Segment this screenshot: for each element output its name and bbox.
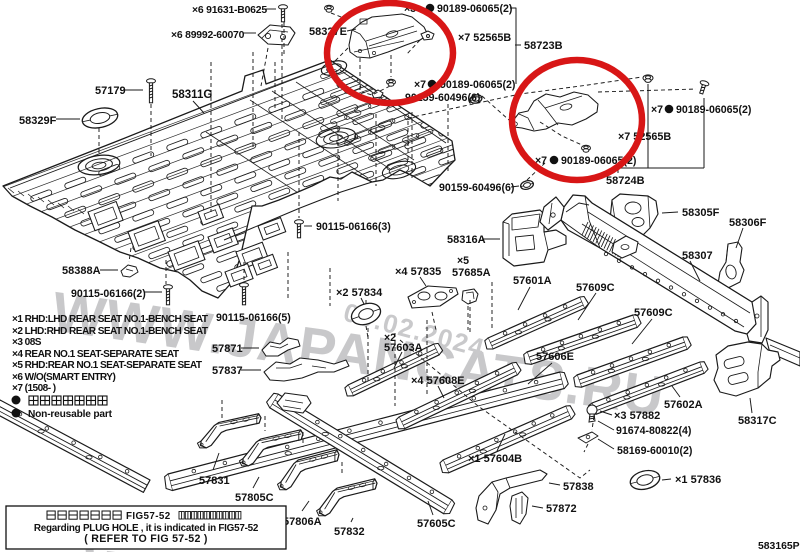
svg-text:×2 57834: ×2 57834 [336,287,383,299]
svg-text:58316A: 58316A [447,234,486,246]
svg-text:×4 57608E: ×4 57608E [411,375,465,387]
svg-text:×1 57836: ×1 57836 [675,474,721,486]
svg-text:57606E: 57606E [536,351,574,363]
svg-text:×6 91631-B0625: ×6 91631-B0625 [192,5,267,16]
svg-text:( REFER TO FIG 57-52 ): ( REFER TO FIG 57-52 ) [84,533,208,545]
svg-text:×6 W/O(SMART ENTRY): ×6 W/O(SMART ENTRY) [12,372,115,383]
svg-text:58724B: 58724B [606,175,645,187]
svg-text:58388A: 58388A [62,265,101,277]
svg-text:57609C: 57609C [634,307,673,319]
svg-text:×7 52565B: ×7 52565B [458,32,511,44]
svg-text:57872: 57872 [546,503,577,515]
svg-text:×3 57882: ×3 57882 [614,410,660,422]
svg-text:×5 RHD:REAR NO.1 SEAT-SEPARATE: ×5 RHD:REAR NO.1 SEAT-SEPARATE SEAT [12,360,203,371]
svg-text:×3 08S: ×3 08S [12,337,42,348]
svg-text:91674-80822(4): 91674-80822(4) [616,425,691,437]
svg-text:90189-06065(2): 90189-06065(2) [440,79,515,91]
svg-text:×7 (1508- ): ×7 (1508- ) [12,383,56,394]
svg-text:58307: 58307 [682,250,713,262]
svg-text:×1 57604B: ×1 57604B [468,453,522,465]
svg-text:57837: 57837 [212,365,243,377]
svg-text:57179: 57179 [95,85,126,97]
svg-text:×2 LHD:RHD REAR SEAT NO.1-BENC: ×2 LHD:RHD REAR SEAT NO.1-BENCH SEAT [12,326,209,337]
svg-text:57838: 57838 [563,481,594,493]
svg-text:57601A: 57601A [513,275,552,287]
svg-text:57871: 57871 [212,343,243,355]
svg-text:90115-06166(2): 90115-06166(2) [71,288,146,300]
svg-text:×4 57835: ×4 57835 [395,266,441,278]
svg-text:57603A: 57603A [384,342,423,354]
svg-text:FIG57-52: FIG57-52 [126,511,171,522]
svg-text:×7: ×7 [651,104,663,116]
svg-text:90115-06166(5): 90115-06166(5) [216,312,291,324]
svg-text:×4 REAR NO.1 SEAT-SEPARATE SEA: ×4 REAR NO.1 SEAT-SEPARATE SEAT [12,349,180,360]
svg-text:90189-06065(2): 90189-06065(2) [437,3,512,15]
svg-text:90159-60496(6): 90159-60496(6) [439,182,514,194]
svg-text:57831: 57831 [199,475,230,487]
svg-text:58169-60010(2): 58169-60010(2) [617,445,692,457]
svg-text:57602A: 57602A [664,399,703,411]
svg-text:57609C: 57609C [576,282,615,294]
svg-text:90189-06065(2): 90189-06065(2) [676,104,751,116]
svg-text:×7 52565B: ×7 52565B [618,131,671,143]
svg-text:57806A: 57806A [283,516,322,528]
svg-text:57832: 57832 [334,526,365,538]
svg-text:57605C: 57605C [417,518,456,530]
svg-text:58329F: 58329F [19,115,57,127]
svg-text:583165P: 583165P [758,541,800,552]
svg-text:90115-06166(3): 90115-06166(3) [316,221,391,233]
svg-text:58311G: 58311G [172,89,212,101]
svg-text:58306F: 58306F [729,217,767,229]
svg-text:57805C: 57805C [235,492,274,504]
svg-text:58317C: 58317C [738,415,777,427]
svg-text:58305F: 58305F [682,207,720,219]
svg-text:58723B: 58723B [524,40,563,52]
svg-text:×7: ×7 [414,79,426,91]
svg-text:×5: ×5 [457,255,469,267]
svg-text:Non-reusable part: Non-reusable part [28,409,113,420]
svg-text:57685A: 57685A [452,267,491,279]
svg-text:×6 89992-60070: ×6 89992-60070 [171,30,245,41]
svg-text:×1 RHD:LHD REAR SEAT NO.1-BENC: ×1 RHD:LHD REAR SEAT NO.1-BENCH SEAT [12,314,209,325]
